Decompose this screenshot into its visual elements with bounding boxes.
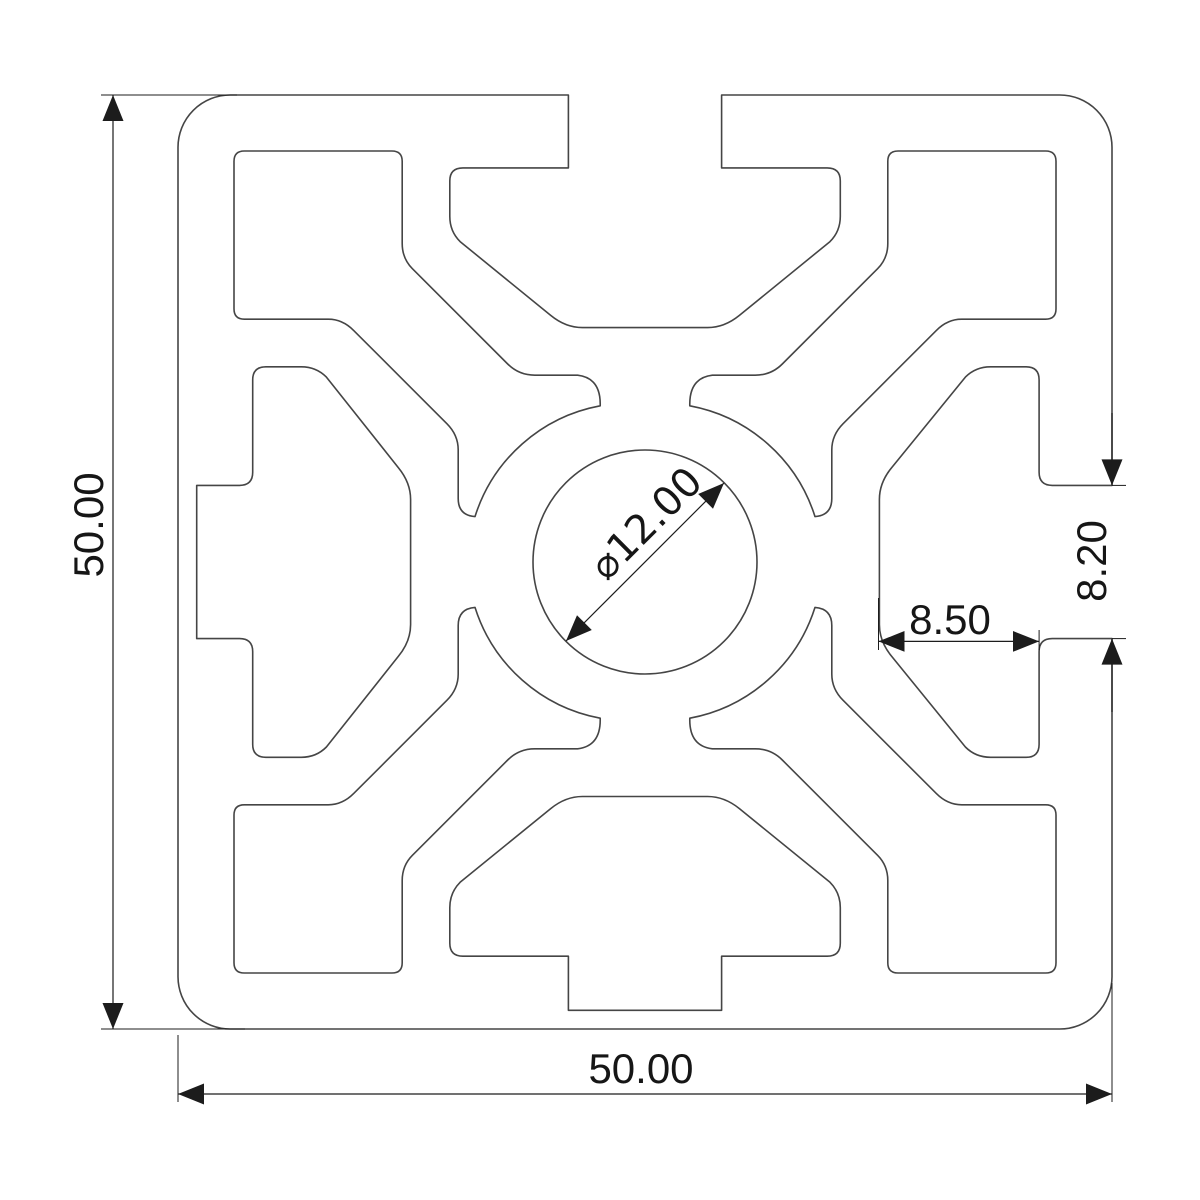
dimension-slot-depth: 8.50 — [879, 596, 1040, 652]
dimension-value: ⌀12.00 — [581, 459, 712, 590]
arrow-right-icon — [1086, 1084, 1112, 1105]
dimension-center-bore: ⌀12.00 — [566, 459, 724, 641]
arrow-down-icon — [103, 1003, 124, 1029]
dimension-overall-height: 50.00 — [65, 95, 245, 1029]
arrow-right-icon — [1013, 631, 1039, 652]
dimension-value: 8.50 — [909, 596, 991, 643]
arrow-up-icon — [103, 95, 124, 121]
chamber-cavity-ne — [690, 151, 1056, 517]
bottom-slot-cavity — [450, 797, 841, 1011]
chamber-cavity-se — [690, 607, 1056, 973]
chamber-cavity-sw — [234, 607, 600, 973]
dimension-overall-width: 50.00 — [178, 983, 1112, 1105]
left-slot-cavity — [197, 367, 411, 758]
arrow-left-icon — [178, 1084, 204, 1105]
technical-drawing: 50.00 50.00 8.50 8.20 ⌀12.00 — [0, 0, 1200, 1200]
arrow-up-icon — [1102, 639, 1123, 665]
arrow-left-icon — [879, 631, 905, 652]
chamber-cavity-nw — [234, 151, 600, 517]
dimension-value: 50.00 — [588, 1045, 693, 1092]
arrow-down-icon — [1102, 459, 1123, 485]
dimension-value: 50.00 — [65, 472, 112, 577]
dimension-slot-opening: 8.20 — [1068, 413, 1126, 712]
dimension-value: 8.20 — [1068, 520, 1115, 602]
